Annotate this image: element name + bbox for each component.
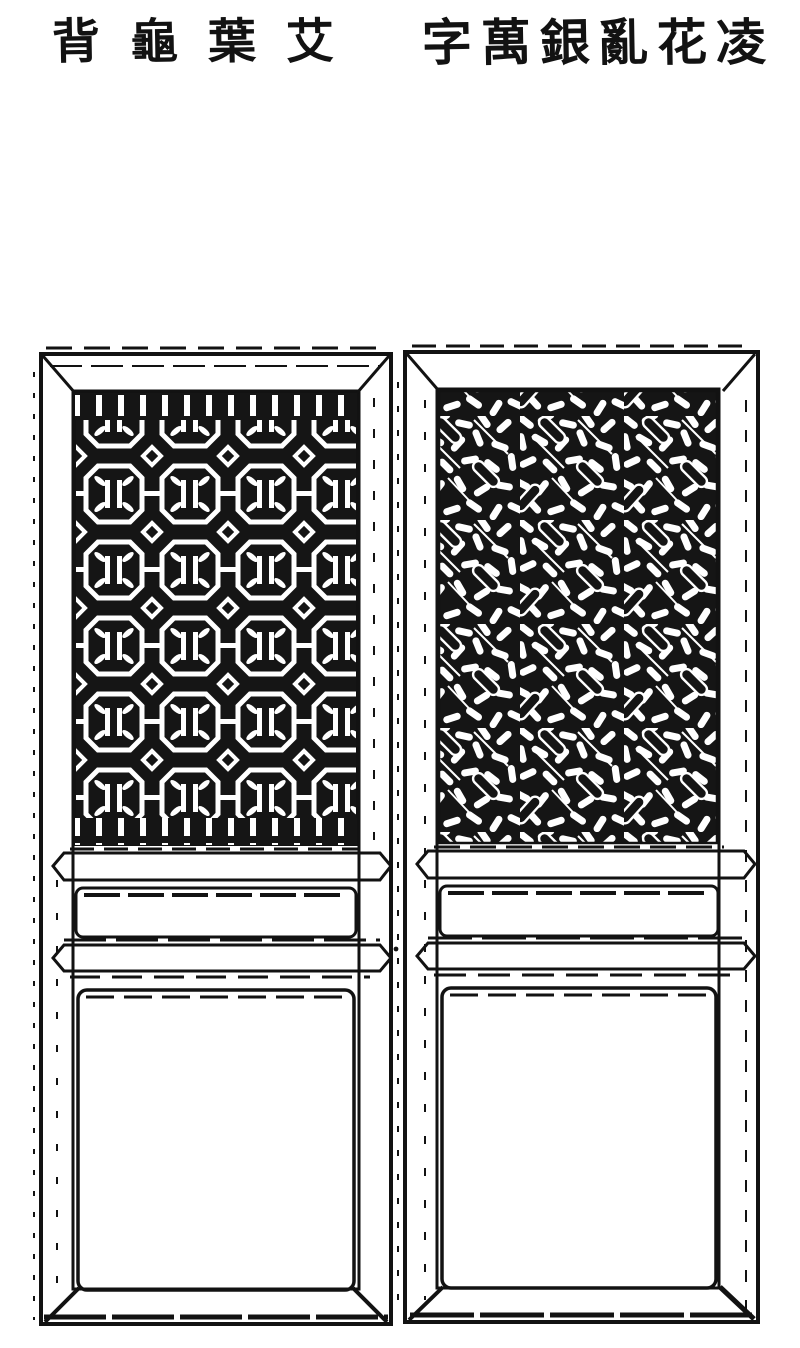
left-door-top-rail (53, 853, 391, 880)
right-door-lattice-ingot-weave (439, 391, 717, 843)
left-door-lower-panel (78, 990, 354, 1290)
book-page: 背 龜 葉 艾 字 萬 銀 亂 花 凌 (0, 0, 800, 1348)
left-door-panel (34, 348, 391, 1324)
right-door-top-rail (417, 851, 755, 878)
door-panels-illustration (0, 0, 800, 1348)
left-door-bottom-rail (53, 945, 391, 971)
right-door-bottom-rail (417, 943, 755, 969)
right-door-lower-panel (442, 988, 716, 1288)
ink-speck (394, 947, 399, 952)
left-door-lattice-tortoise-shell (75, 393, 357, 845)
right-door-panel (398, 346, 758, 1322)
